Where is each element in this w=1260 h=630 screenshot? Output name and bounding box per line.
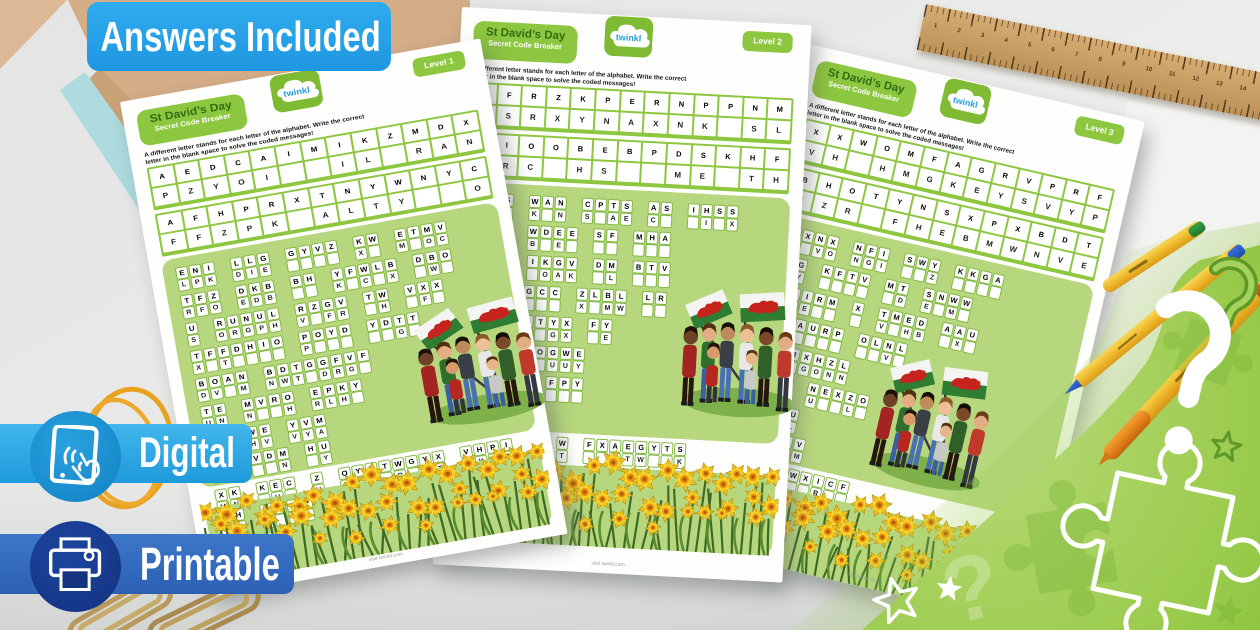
svg-text:?: ?: [932, 532, 1011, 630]
